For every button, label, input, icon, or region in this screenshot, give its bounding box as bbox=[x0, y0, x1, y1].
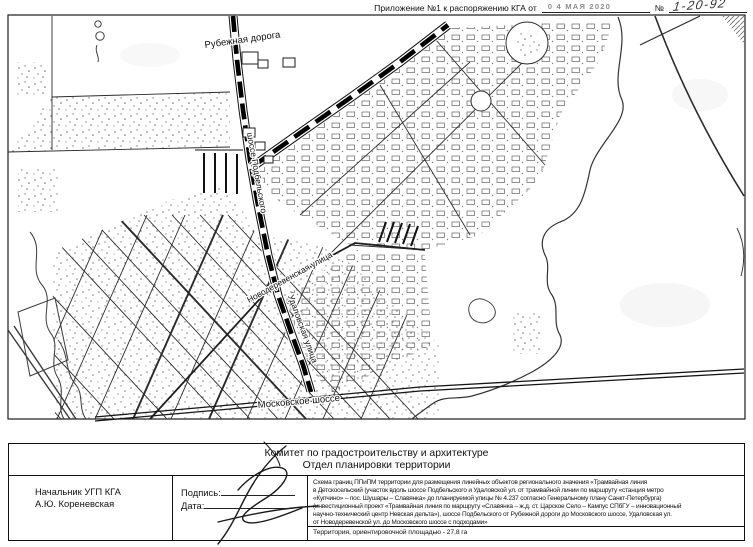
date-blank bbox=[204, 499, 292, 509]
signature-label: Подпись: bbox=[181, 487, 221, 498]
signature-blank bbox=[221, 486, 295, 496]
org-name: Комитет по градостроительству и архитект… bbox=[265, 448, 489, 460]
description-line: (инвестиционный проект «Трамвайная линия… bbox=[313, 503, 740, 511]
handwritten-number: 1-20-92 bbox=[672, 0, 727, 14]
description-line: Схема границ ППиПМ территории для размещ… bbox=[313, 479, 740, 487]
date-stamp: 0 4 МАЯ 2020 bbox=[548, 2, 611, 11]
scanned-plan-sheet: Приложение №1 к распоряжению КГА от 0 4 … bbox=[0, 0, 753, 547]
number-sign: № bbox=[655, 3, 664, 13]
date-label: Дата: bbox=[181, 500, 204, 511]
official-cell: Начальник УГП КГА А.Ю. Кореневская bbox=[9, 476, 173, 540]
order-date-blank: 0 4 МАЯ 2020 bbox=[542, 1, 650, 13]
org-header: Комитет по градостроительству и архитект… bbox=[9, 444, 744, 476]
description-cell: Схема границ ППиПМ территории для размещ… bbox=[308, 476, 744, 540]
annex-header: Приложение №1 к распоряжению КГА от 0 4 … bbox=[374, 1, 747, 13]
description-line: «Купчино» – пос. Шушары – Славянка» до п… bbox=[313, 495, 740, 503]
official-position: Начальник УГП КГА bbox=[35, 486, 166, 498]
order-number-blank: 1-20-92 bbox=[669, 1, 747, 13]
title-block: Комитет по градостроительству и архитект… bbox=[8, 443, 745, 541]
description-line: в Детскосельский (участок вдоль шоссе По… bbox=[313, 487, 740, 495]
org-department: Отдел планировки территории bbox=[303, 460, 451, 472]
description-line: научно-технический центр Невская дельта»… bbox=[313, 511, 740, 519]
territory-map: Рубежная дорога шоссе Подбельского Новод… bbox=[0, 0, 753, 430]
title-block-row: Начальник УГП КГА А.Ю. Кореневская Подпи… bbox=[9, 476, 744, 540]
signature-cell: Подпись: Дата: bbox=[173, 476, 308, 540]
annex-label: Приложение №1 к распоряжению КГА от bbox=[374, 3, 537, 13]
official-name: А.Ю. Кореневская bbox=[35, 498, 166, 510]
area-note: Территория, ориентировочной площадью - 2… bbox=[308, 526, 744, 540]
